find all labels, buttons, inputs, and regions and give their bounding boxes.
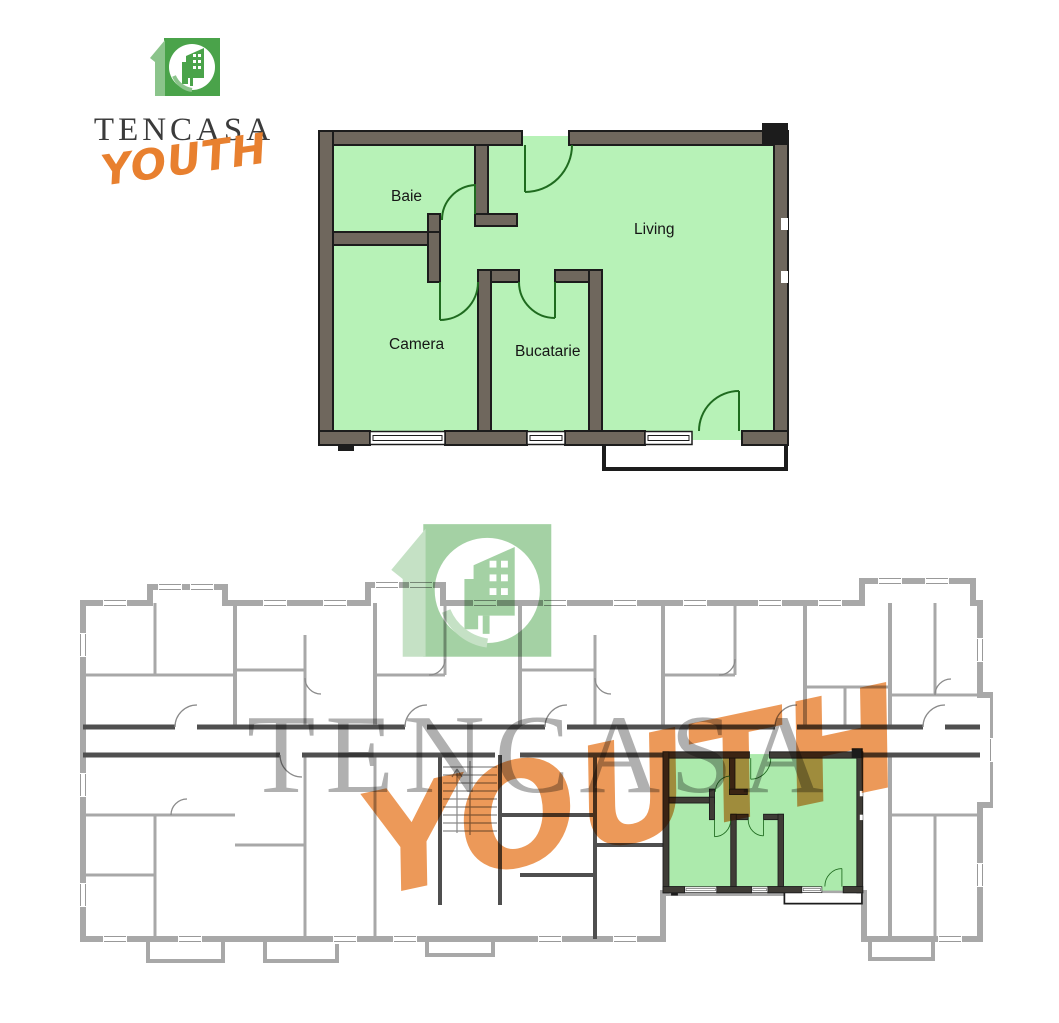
- brand-logo: TENCASA YOUTH: [84, 34, 284, 184]
- highlighted-apartment-unit: [663, 748, 863, 903]
- floorplan-sheet: TENCASA YOUTH Baie Living Camera Bucatar…: [0, 0, 1059, 1023]
- building-floor-plan: [75, 575, 993, 975]
- room-label-baie: Baie: [391, 188, 422, 205]
- tencasa-10-building-icon: [146, 34, 222, 104]
- room-label-bucatarie: Bucatarie: [515, 343, 580, 360]
- apartment-walls: [319, 123, 788, 469]
- stair-treads: [443, 761, 497, 835]
- building-plan-section: TENCASA YOUTH: [75, 575, 993, 975]
- apartment-floor-plan: Baie Living Camera Bucatarie: [312, 118, 790, 480]
- corridor-walls: [83, 727, 980, 755]
- room-label-living: Living: [634, 221, 675, 238]
- room-label-camera: Camera: [389, 336, 445, 353]
